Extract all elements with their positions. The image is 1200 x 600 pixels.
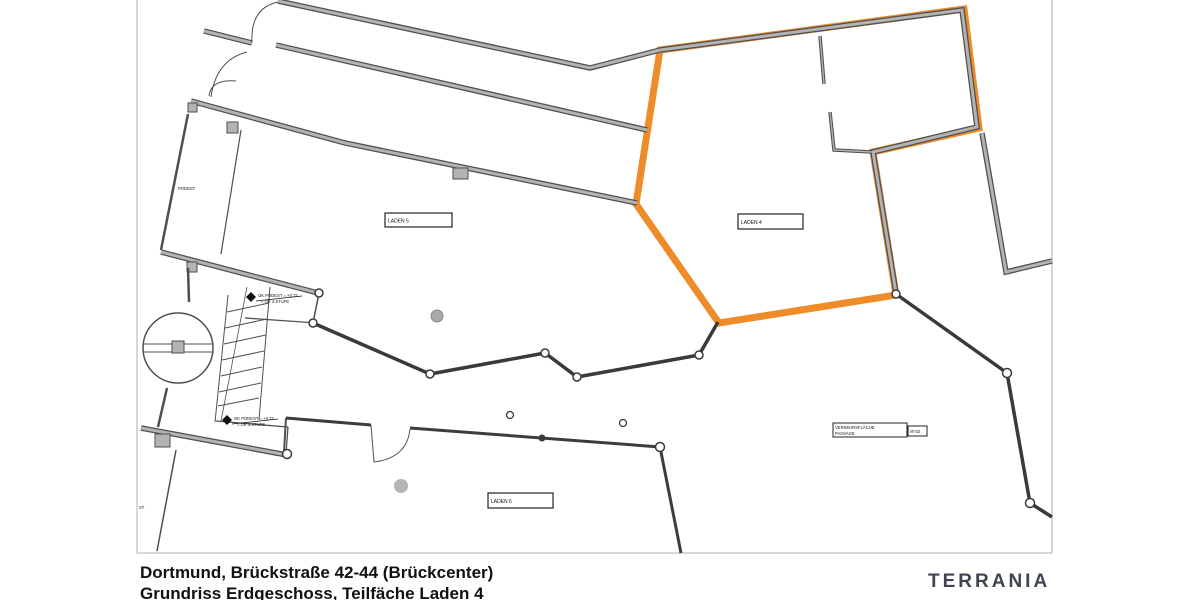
laden6-walls	[286, 418, 681, 553]
project-title: Dortmund, Brückstraße 42-44 (Brückcenter…	[140, 562, 493, 583]
laden4-partitions	[820, 36, 872, 152]
st-partial-label: ST	[139, 505, 145, 510]
podest-label: PODEST	[178, 186, 196, 191]
title-block: Dortmund, Brückstraße 42-44 (Brückcenter…	[140, 562, 493, 600]
small-post	[507, 412, 514, 419]
floorplan-page: OK PODEST = +0.72 = OK 4.STUFE OK PODEST…	[0, 0, 1200, 600]
laden5-label: LADEN 5	[388, 219, 409, 225]
level-markers: OK PODEST = +0.72 = OK 4.STUFE OK PODEST…	[222, 292, 302, 427]
room-labels: LADEN 5 LADEN 4 LADEN 6 VERKEHRSFLÄCHE P…	[139, 186, 927, 510]
verkehrsflaeche-label: VERKEHRSFLÄCHE	[835, 425, 875, 430]
floorplan-drawing: OK PODEST = +0.72 = OK 4.STUFE OK PODEST…	[0, 0, 1200, 600]
drawing-subtitle: Grundriss Erdgeschoss, Teilfäche Laden 4	[140, 583, 493, 600]
level-text: = OK 4.STUFE	[261, 299, 289, 304]
wall-piers	[155, 103, 468, 447]
passage-label: PASSAGE	[835, 431, 855, 436]
laden4-label: LADEN 4	[741, 220, 762, 226]
staircase	[215, 287, 317, 453]
column	[394, 479, 408, 493]
level-text: OK PODEST = +0.72	[234, 416, 274, 421]
circle-element	[143, 313, 213, 383]
level-text: OK PODEST = +0.72	[258, 293, 298, 298]
laden4-highlight-outline	[636, 9, 979, 323]
vf-label: VF.02	[910, 429, 921, 434]
junction-nodes	[283, 289, 1035, 508]
plan-frame	[137, 0, 1052, 553]
laden6-label: LADEN 6	[491, 499, 512, 505]
level-text: = OK 4.STUFE	[237, 422, 265, 427]
small-post	[620, 420, 627, 427]
walls-outline	[141, 1, 1052, 455]
shopfront-chains	[313, 294, 1052, 517]
column	[431, 310, 443, 322]
terrania-logo: TERRANIA	[928, 571, 1050, 593]
filled-node	[539, 435, 546, 442]
